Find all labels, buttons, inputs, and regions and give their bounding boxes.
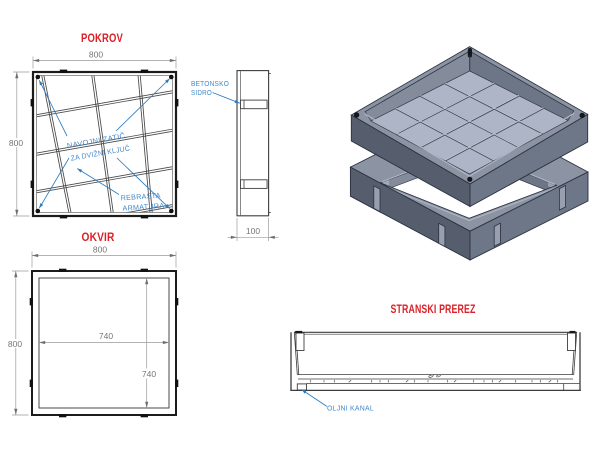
- svg-text:BETONSKO: BETONSKO: [191, 79, 229, 88]
- svg-text:740: 740: [99, 331, 113, 341]
- svg-text:800: 800: [89, 50, 103, 60]
- svg-text:SIDRO: SIDRO: [191, 88, 212, 97]
- svg-text:800: 800: [9, 138, 23, 148]
- svg-text:800: 800: [93, 245, 107, 255]
- svg-text:100: 100: [246, 226, 260, 236]
- svg-text:POKROV: POKROV: [81, 33, 123, 45]
- svg-text:STRANSKI PREREZ: STRANSKI PREREZ: [391, 304, 476, 316]
- svg-text:OLJNI KANAL: OLJNI KANAL: [327, 404, 374, 413]
- svg-text:OKVIR: OKVIR: [82, 232, 115, 244]
- svg-text:740: 740: [142, 369, 156, 379]
- svg-text:800: 800: [8, 339, 22, 349]
